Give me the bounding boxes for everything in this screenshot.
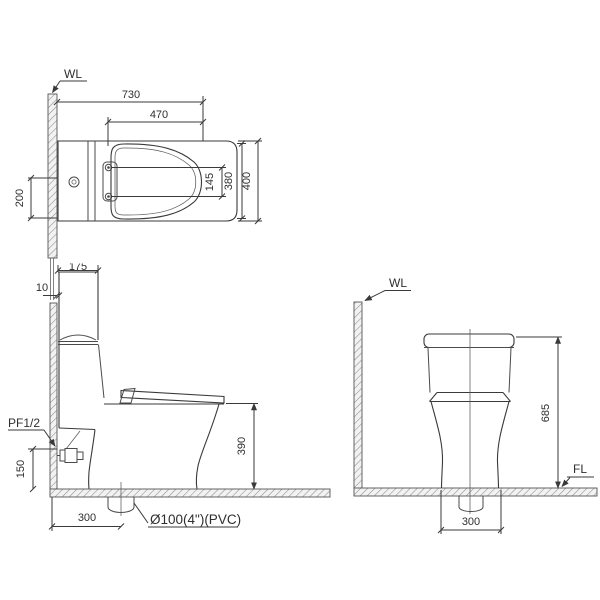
rear-dim-overall-height: 685	[540, 404, 552, 422]
plan-wall-line-label: WL	[64, 67, 82, 81]
rear-floor-section	[354, 488, 597, 496]
technical-drawing-canvas: WL 730 470 145 380 400	[0, 0, 600, 600]
plan-wall-section	[48, 94, 57, 258]
plan-wl-leader-line	[53, 81, 61, 93]
plan-supply-fitting-inner	[72, 180, 76, 184]
rear-view: WL FL 685 300	[354, 276, 597, 534]
plan-dim-470-lines	[105, 117, 206, 146]
rear-fl-leader	[562, 478, 570, 487]
plan-hinge-bolt-top-center	[107, 166, 110, 169]
side-supply-pipe-line	[66, 431, 80, 449]
side-seat-cover	[121, 391, 224, 404]
rear-dim-base-width: 300	[462, 516, 480, 528]
plan-dim-supply-offset: 200	[14, 189, 26, 207]
plan-view: WL 730 470 145 380 400	[14, 67, 262, 300]
side-tank-outline	[58, 272, 98, 428]
rear-tank-lid	[424, 334, 514, 348]
side-dim-wall-gap: 10	[36, 282, 48, 294]
rear-outlet-pipe	[459, 496, 483, 512]
rear-wall-section	[354, 302, 362, 489]
plan-dim-730-lines	[54, 96, 206, 141]
plan-seat-inner-outline	[115, 148, 196, 215]
side-view: 175 10 PF1/2 150	[8, 261, 330, 531]
plan-dim-overall-width: 400	[241, 172, 253, 190]
plan-dim-body-width: 380	[223, 172, 235, 190]
rear-wl-leader	[365, 291, 385, 301]
side-valve-flange	[60, 450, 65, 461]
plan-dim-seat-length: 470	[150, 109, 168, 121]
side-dim-seat-height: 390	[236, 437, 248, 455]
side-valve-nose	[77, 452, 83, 460]
rear-pedestal-left-curve	[431, 402, 443, 489]
plan-dim-bolt-spacing: 145	[204, 173, 216, 191]
side-supply-label: PF1/2	[8, 416, 40, 430]
side-outlet-label: Ø100(4")(PVC)	[150, 512, 241, 527]
plan-wall-extension-lines	[51, 258, 54, 300]
plan-seat-outer-outline	[111, 144, 202, 219]
rear-floor-line-label: FL	[573, 462, 587, 476]
side-floor-section	[50, 489, 330, 497]
plan-supply-fitting-outer	[69, 177, 79, 187]
side-dim-rough-in: 300	[78, 512, 96, 524]
side-dim-supply-height: 150	[15, 460, 27, 478]
side-tank-lid-lines	[58, 335, 104, 398]
toilet-spec-drawing: WL 730 470 145 380 400	[0, 0, 600, 600]
rear-pedestal-right-curve	[497, 402, 509, 489]
side-bowl-front-curve	[196, 404, 219, 489]
side-valve-body	[65, 449, 77, 463]
plan-dim-total-depth: 730	[122, 89, 140, 101]
rear-tank-body-lines	[424, 348, 514, 393]
side-dim-tank-depth: 175	[69, 261, 87, 273]
rear-wall-line-label: WL	[389, 276, 407, 290]
side-wall-section	[50, 303, 57, 489]
plan-tank-divider-lines	[88, 141, 95, 221]
plan-hinge-bolt-bottom-center	[107, 195, 110, 198]
